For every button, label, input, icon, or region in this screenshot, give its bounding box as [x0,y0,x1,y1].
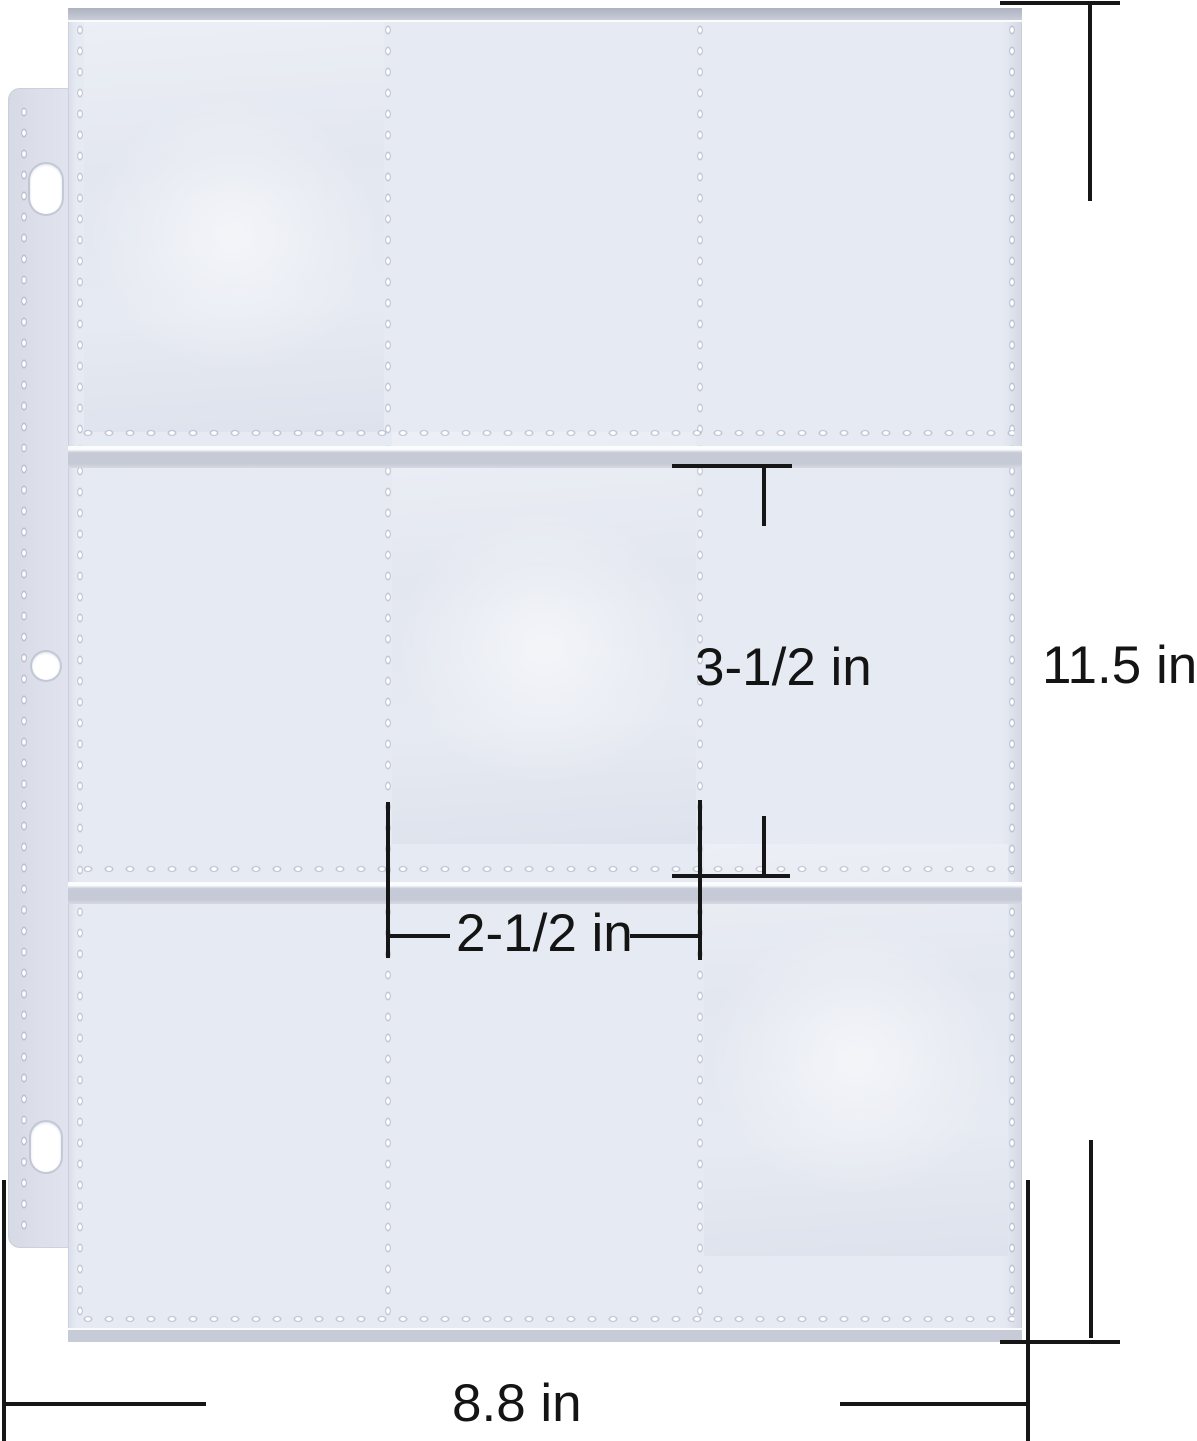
nine-pocket-page [68,8,1022,1340]
binder-edge-strip [8,88,72,1248]
page-top-seam [68,8,1022,22]
dim-line-top-tick [1000,1,1120,5]
dim-line-bottom-tick [1000,1340,1120,1344]
dim-line-bottom-segment [1089,1140,1093,1338]
stitch-line-left-edge [74,20,86,1320]
dim-line-bottom-tick [672,874,790,878]
strip-stitch-line [18,102,30,1232]
dim-line-bottom-stub [762,816,766,878]
stitch-line-row3-bottom [78,1312,1014,1326]
row-seam-1 [68,446,1022,468]
dim-line-top-segment [1088,1,1092,201]
dim-line-left-stub [388,934,450,938]
stitch-line-row1-bottom [78,426,1014,440]
binder-hole-top [30,164,62,214]
dim-label-page-height: 11.5 in [1042,638,1197,694]
product-dimension-diagram: 3-1/2 in 2-1/2 in 11.5 in 8.8 in [0,0,1197,1441]
dim-line-right-tick [1026,1180,1030,1441]
stitch-line-right-edge [1006,20,1018,1320]
dim-line-top-tick [672,464,792,468]
card-pocket-r1c3 [704,844,1008,1256]
dim-label-page-width: 8.8 in [452,1376,582,1432]
binder-hole-bottom [31,1122,61,1172]
dim-label-pocket-height: 3-1/2 in [695,640,872,696]
page-bottom-seam [68,1328,1022,1342]
stitch-line-row2-bottom [78,862,1014,876]
dim-line-top-stub [762,466,766,526]
binder-hole-middle [32,652,60,680]
row-seam-2 [68,882,1022,904]
card-pocket-r1c1 [84,20,384,432]
stitch-line-divider-1 [382,20,394,1320]
dim-line-left-stub [6,1402,206,1406]
card-pocket-r1c2 [392,432,696,844]
dim-line-right-stub [840,1402,1030,1406]
dim-label-pocket-width: 2-1/2 in [456,906,633,962]
dim-line-right-stub [630,934,702,938]
dim-line-right-tick [698,800,702,960]
